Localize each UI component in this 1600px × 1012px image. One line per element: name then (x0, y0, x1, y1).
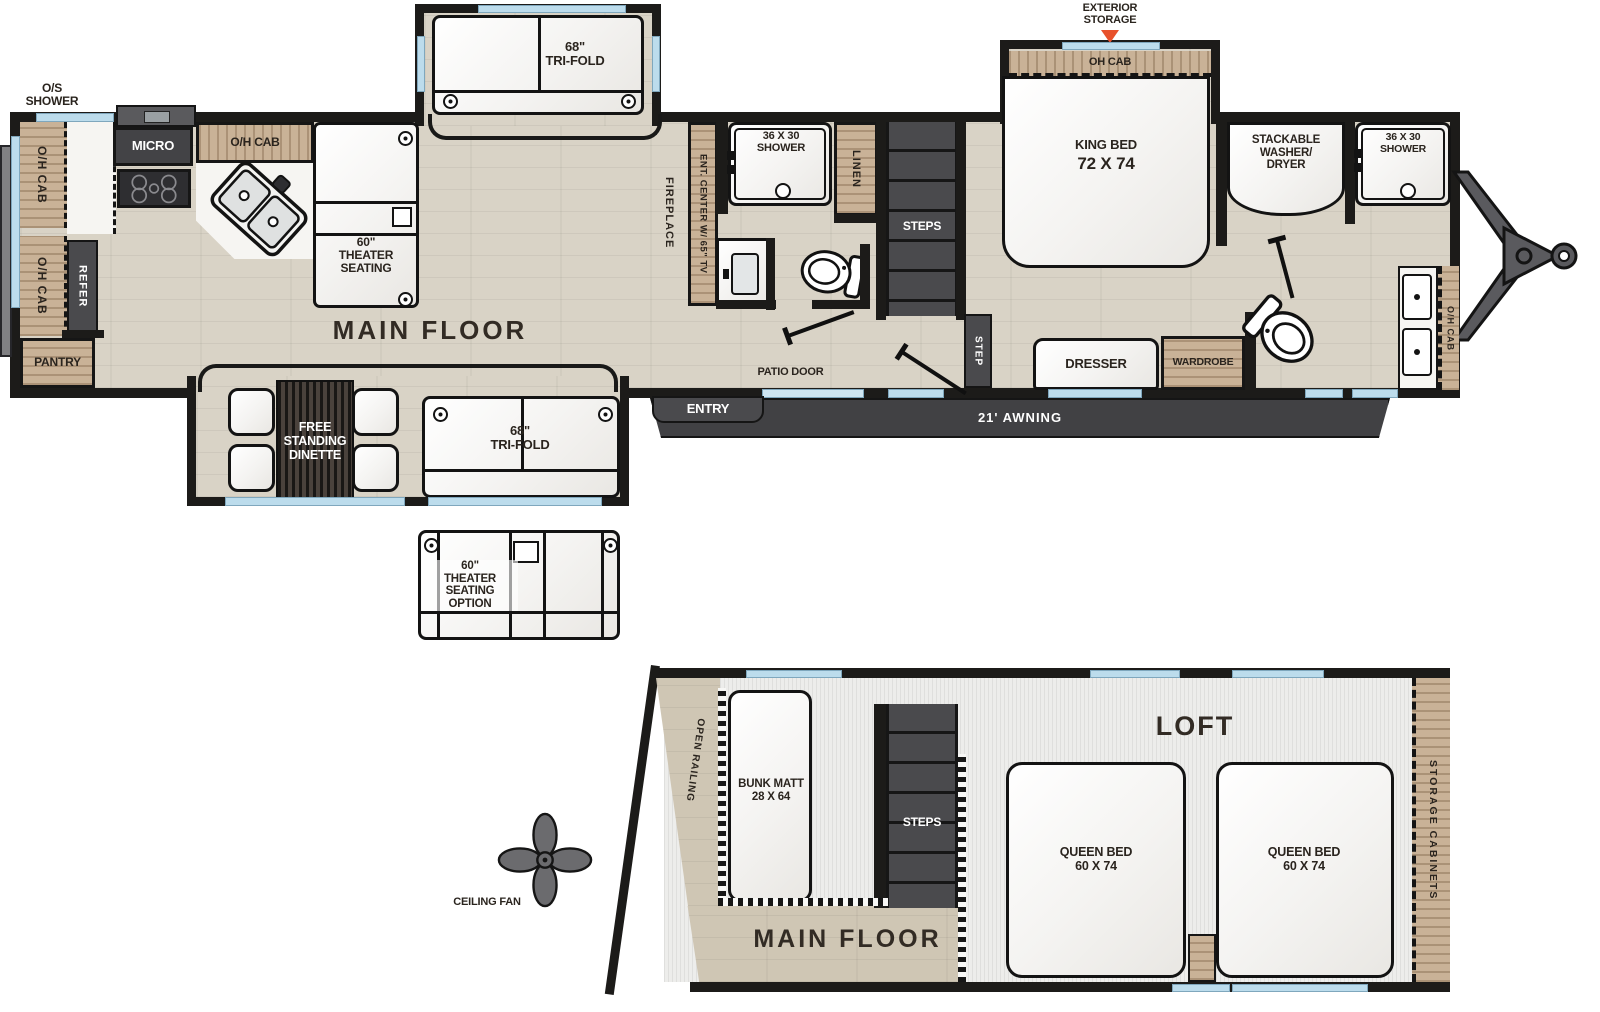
linen-label: LINEN (837, 125, 875, 213)
storage-cabinets: STORAGE CABINETS (1412, 678, 1450, 982)
wall (1216, 122, 1227, 246)
wall (716, 300, 776, 309)
window (11, 136, 20, 308)
window (1172, 984, 1230, 992)
window (652, 36, 660, 92)
patio-door-label: PATIO DOOR (723, 366, 858, 378)
window (1232, 670, 1324, 678)
dresser: DRESSER (1033, 338, 1159, 390)
steps-loft: STEPS (886, 704, 958, 908)
loft-cut-edge (605, 665, 660, 995)
kitchen-counter (67, 122, 116, 234)
theater-seating (313, 122, 419, 308)
outside-shower-unit (116, 105, 196, 127)
shower-mid-label: 36 X 30 SHOWER (740, 130, 822, 154)
vanity-sink (716, 238, 770, 308)
bath-sink (1402, 274, 1432, 320)
overhead-cabinet-label: O/H CAB (230, 136, 279, 149)
railing (718, 898, 888, 906)
wall (834, 214, 878, 223)
window (417, 36, 425, 92)
wall (1345, 122, 1355, 224)
step-label: STEP (966, 316, 990, 386)
microwave: MICRO (113, 127, 193, 166)
steps-loft-label: STEPS (889, 816, 955, 829)
bath-sink (1402, 328, 1432, 376)
steps-main: STEPS (886, 122, 958, 316)
window (1305, 389, 1343, 398)
outside-shower-label: O/S SHOWER (12, 82, 92, 108)
dinette-label: FREE STANDING DINETTE (284, 421, 347, 462)
theater-option-label: 60" THEATER SEATING OPTION (422, 560, 518, 611)
loft-label: LOFT (1120, 712, 1270, 742)
overhead-cabinet: O/H CAB (20, 122, 67, 228)
wardrobe-label: WARDROBE (1173, 357, 1234, 369)
fireplace-label: FIREPLACE (660, 168, 678, 258)
dinette-chair (352, 388, 399, 436)
entry-label: ENTRY (687, 402, 730, 416)
overhead-cabinet-front: O/H CAB (1438, 266, 1459, 390)
queen-bed-label: QUEEN BED 60 X 74 (1240, 846, 1368, 874)
awning-label: 21' AWNING (978, 411, 1062, 425)
wall (874, 704, 886, 908)
wall (956, 122, 966, 320)
pantry: PANTRY (20, 338, 95, 388)
wall (62, 330, 104, 338)
king-bed-size-label: 72 X 74 (1040, 155, 1172, 174)
shower-front-label: 36 X 30 SHOWER (1364, 132, 1442, 155)
wall (860, 244, 870, 308)
window (888, 389, 944, 398)
window (1232, 984, 1368, 992)
linen-cabinet: LINEN (834, 122, 878, 216)
loft-mainfloor-label: MAIN FLOOR (740, 926, 955, 954)
window (428, 497, 602, 506)
ceiling-fan-icon (497, 812, 593, 908)
king-bed-label: KING BED (1040, 138, 1172, 152)
storage-cabinets-label: STORAGE CABINETS (1416, 678, 1450, 982)
cooktop (117, 169, 191, 208)
corner-sink-icon (202, 160, 316, 258)
window (1352, 389, 1398, 398)
overhead-cabinet: O/H CAB (196, 122, 314, 163)
burners-icon (120, 172, 188, 205)
entry-door: ENTRY (652, 396, 764, 423)
overhead-cabinet: O/H CAB (20, 236, 67, 336)
theater-seating-label: 60" THEATER SEATING (318, 236, 414, 276)
washer-dryer-label: STACKABLE WASHER/ DRYER (1231, 134, 1341, 172)
window (1048, 389, 1142, 398)
window (478, 5, 626, 13)
step-box: STEP (964, 314, 992, 388)
trifold-top-label: 68" TRI-FOLD (520, 40, 630, 69)
entertainment-center: ENT. CENTER W/ 65" TV (688, 122, 718, 306)
bunk-matt-label: BUNK MATT 28 X 64 (726, 778, 816, 803)
window (36, 113, 114, 122)
dinette-chair (228, 388, 275, 436)
exterior-storage-label: EXTERIOR STORAGE (1058, 2, 1162, 26)
window (225, 497, 405, 506)
dinette-chair (352, 444, 399, 492)
railing (718, 688, 726, 906)
microwave-label: MICRO (132, 139, 174, 153)
entertainment-center-label: ENT. CENTER W/ 65" TV (691, 125, 715, 303)
window (746, 670, 842, 678)
dinette-chair (228, 444, 275, 492)
dresser-label: DRESSER (1065, 357, 1126, 371)
ceiling-fan-label: CEILING FAN (428, 896, 546, 908)
rv-floorplan: 68" TRI-FOLD O/S SHOWER O/H CAB MICRO O/… (0, 0, 1600, 1012)
pantry-label: PANTRY (34, 356, 81, 369)
wall (876, 122, 886, 320)
window (1062, 42, 1160, 50)
overhead-cabinet-bed-label: OH CAB (1089, 56, 1131, 68)
refrigerator: REFER (67, 240, 98, 332)
wall (812, 300, 870, 309)
queen-bed-label: QUEEN BED 60 X 74 (1032, 846, 1160, 874)
railing (958, 754, 966, 982)
steps-main-label: STEPS (889, 220, 955, 233)
refrigerator-label: REFER (69, 242, 96, 330)
overhead-cabinet-label: O/H CAB (20, 122, 64, 228)
wardrobe: WARDROBE (1161, 336, 1245, 390)
slideout-opening-top (428, 114, 662, 140)
hitch-icon (1452, 170, 1600, 342)
overhead-cabinet-front-label: O/H CAB (1442, 266, 1459, 390)
trifold-bottom-label: 68" TRI-FOLD (470, 424, 570, 453)
overhead-cabinet-bed: OH CAB (1009, 51, 1211, 77)
nightstand (1188, 934, 1216, 982)
window (1090, 670, 1180, 678)
main-floor-label: MAIN FLOOR (320, 316, 540, 345)
patio-door (762, 389, 864, 398)
overhead-cabinet-label: O/H CAB (20, 236, 64, 336)
dinette-table: FREE STANDING DINETTE (276, 380, 354, 504)
